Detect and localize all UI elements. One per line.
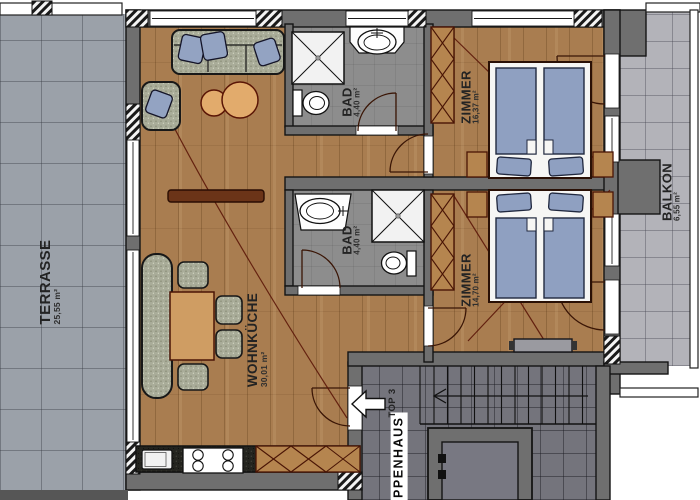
stairs: [420, 366, 596, 424]
room-label-wohnkueche: WOHNKÜCHE 30,01 m²: [246, 293, 268, 387]
kitchen-counter: [136, 446, 360, 473]
pillow: [496, 157, 531, 176]
dining-table: [170, 292, 214, 360]
wardrobe-middle: [431, 194, 454, 290]
dining-bench: [142, 254, 172, 398]
sofa: [172, 30, 284, 74]
room-area: 4,40 m²: [354, 88, 362, 117]
room-area: 14,70 m²: [473, 273, 481, 307]
room-label-zimmer-mitte: ZIMMER 14,70 m²: [459, 253, 480, 307]
room-name: BAD: [340, 87, 353, 116]
room-label-treppenhaus: TREPPENHAUS: [391, 413, 408, 500]
room-name: BALKON: [660, 163, 673, 221]
toilet-middle: [382, 251, 417, 276]
elevator: [428, 428, 532, 500]
room-area: 25,55 m²: [53, 289, 62, 325]
wardrobe-top: [431, 27, 454, 123]
pillow: [200, 31, 228, 61]
room-area: 30,01 m²: [260, 352, 269, 388]
room-name: WOHNKÜCHE: [246, 293, 260, 387]
pillow: [548, 193, 583, 212]
coffee-tables: [201, 82, 258, 118]
pillow: [548, 157, 583, 176]
room-area: 16,37 m²: [473, 90, 481, 124]
floor-plan: TERRASSE 25,55 m² WOHNKÜCHE 30,01 m² BAD…: [0, 0, 700, 500]
entrance-unit-label: TOP 3: [388, 388, 398, 417]
room-label-balkon: BALKON 6,55 m²: [660, 163, 681, 221]
toilet-top: [293, 90, 329, 116]
armchair: [142, 82, 180, 130]
pillow: [496, 193, 531, 212]
room-label-bad-oben: BAD 4,40 m²: [340, 87, 361, 116]
room-label-terrasse: TERRASSE 25,55 m²: [38, 240, 62, 325]
entrance-label-top3: TOP 3: [388, 388, 398, 417]
stove: [183, 448, 243, 473]
shower-top: [292, 32, 344, 84]
room-name: TERRASSE: [38, 240, 53, 325]
room-name: TREPPENHAUS: [393, 417, 406, 500]
washbasin-top: [350, 27, 404, 54]
double-bed-top: [489, 62, 591, 178]
room-label-zimmer-oben: ZIMMER 16,37 m²: [459, 70, 480, 124]
room-label-bad-mitte: BAD 4,40 m²: [340, 225, 361, 254]
sideboard-bedroom: [509, 339, 577, 352]
room-area: 4,40 m²: [354, 226, 362, 255]
room-name: BAD: [340, 225, 353, 254]
shower-middle: [372, 190, 424, 242]
double-bed-middle: [489, 190, 591, 302]
sideboard-living: [168, 190, 264, 202]
room-name: ZIMMER: [459, 70, 472, 124]
room-name: ZIMMER: [459, 253, 472, 307]
room-area: 6,55 m²: [674, 192, 682, 221]
